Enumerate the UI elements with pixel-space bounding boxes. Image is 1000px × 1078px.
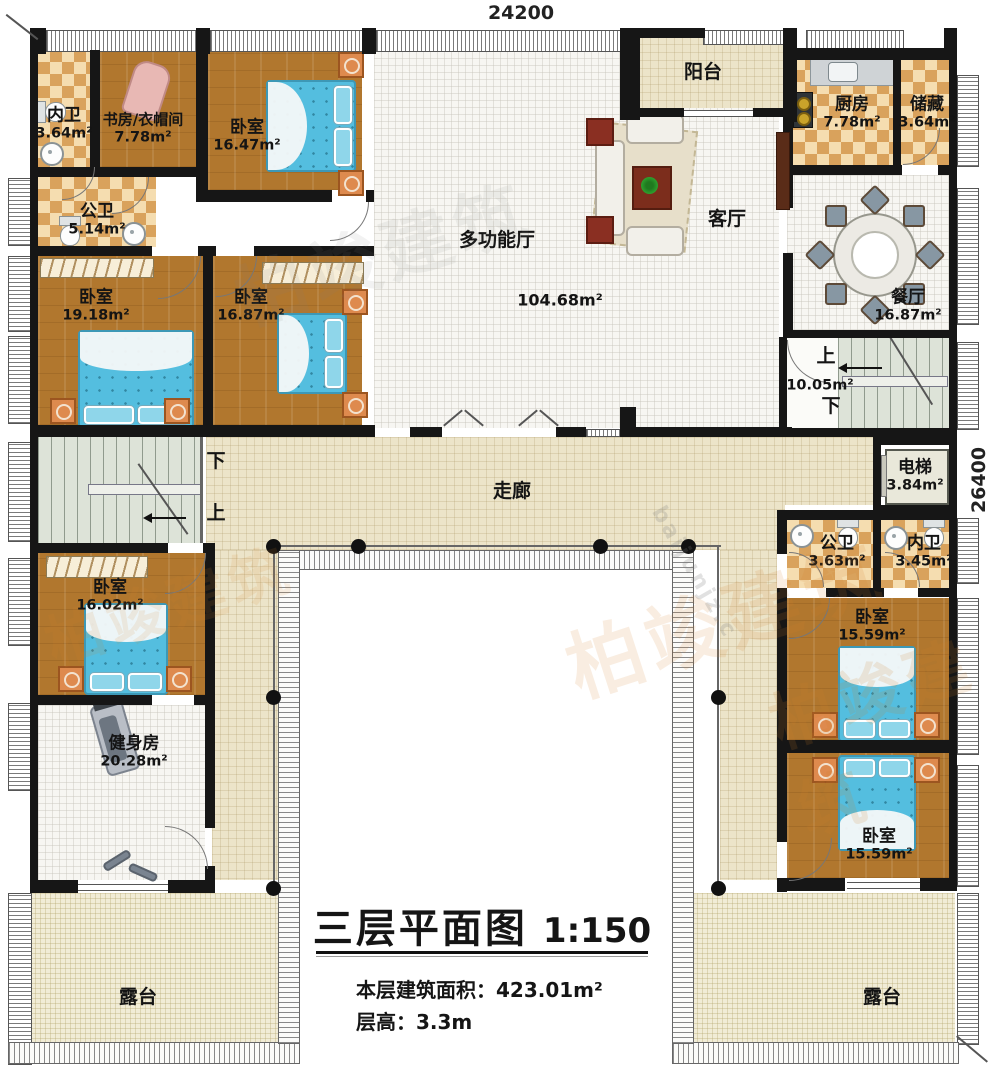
label-terrace-left: 露台 bbox=[119, 986, 157, 1008]
guard-line bbox=[717, 545, 719, 890]
column-dot bbox=[711, 881, 726, 896]
sliding-door bbox=[78, 884, 168, 891]
label-bath-public-2: 公卫3.63m² bbox=[808, 533, 865, 570]
wall bbox=[787, 330, 957, 338]
floor-area-label: 本层建筑面积： bbox=[356, 978, 496, 1002]
door-arc bbox=[330, 202, 369, 241]
label-study: 书房/衣帽间7.78m² bbox=[103, 112, 183, 147]
label-stairs-right-up: 上 bbox=[816, 345, 835, 367]
nightstand bbox=[812, 712, 838, 738]
bed bbox=[84, 603, 168, 695]
room-terrace-right bbox=[692, 893, 955, 1043]
wall bbox=[366, 190, 374, 202]
railing bbox=[278, 550, 300, 1044]
wall bbox=[203, 255, 213, 425]
wall bbox=[944, 28, 957, 60]
plant bbox=[641, 177, 658, 194]
floor-height-line: 层高：3.3m bbox=[356, 1006, 472, 1035]
dimension-right: 26400 bbox=[968, 447, 990, 513]
dining-chair bbox=[825, 205, 847, 227]
window-band bbox=[8, 336, 32, 424]
window-band bbox=[957, 342, 979, 430]
railing bbox=[672, 550, 694, 1044]
corner-tick bbox=[6, 14, 39, 40]
pillow bbox=[325, 356, 343, 389]
guard-line bbox=[200, 437, 203, 543]
label-bedroom-1918: 卧室19.18m² bbox=[62, 287, 129, 324]
bed-sheet bbox=[279, 315, 309, 392]
label-living-room: 客厅 bbox=[708, 208, 746, 230]
wall bbox=[783, 28, 797, 122]
sofa-bottom bbox=[626, 226, 684, 256]
floor-plan-canvas: 内卫3.64m² 书房/衣帽间7.78m² 卧室16.47m² 公卫5.14m²… bbox=[0, 0, 1000, 1078]
wall bbox=[556, 427, 586, 437]
stairs-right-arrow-line bbox=[846, 367, 882, 369]
nightstand bbox=[914, 712, 940, 738]
wall bbox=[918, 588, 949, 597]
window-band bbox=[957, 765, 979, 887]
railing bbox=[672, 1042, 959, 1064]
wall bbox=[920, 878, 949, 891]
column-dot bbox=[266, 539, 281, 554]
window-band bbox=[46, 30, 198, 52]
wall bbox=[873, 518, 881, 590]
guard-line bbox=[273, 545, 721, 547]
corridor-left bbox=[212, 550, 278, 880]
window-band bbox=[376, 30, 624, 52]
floor-area-value: 423.01m² bbox=[496, 978, 603, 1002]
railing bbox=[8, 1042, 300, 1064]
title-block: 三层平面图 1:150 bbox=[300, 896, 664, 954]
stove-burner-2 bbox=[797, 112, 811, 126]
kitchen-sink bbox=[828, 62, 858, 82]
pillow bbox=[334, 128, 352, 166]
floor-height-label: 层高： bbox=[356, 1010, 416, 1034]
wall bbox=[777, 588, 787, 842]
label-bath-inner-2: 内卫3.45m² bbox=[895, 533, 952, 570]
label-stairs-right-down: 下 bbox=[821, 395, 840, 417]
wall bbox=[623, 28, 705, 38]
wall bbox=[873, 437, 957, 445]
wall bbox=[620, 427, 792, 437]
nightstand bbox=[342, 392, 368, 418]
window-band bbox=[806, 30, 904, 50]
wall bbox=[640, 108, 684, 117]
label-stairs-left-down: 下 bbox=[206, 450, 225, 472]
label-gym: 健身房20.28m² bbox=[100, 733, 167, 770]
sink bbox=[40, 142, 64, 166]
wall bbox=[168, 880, 213, 893]
pillow bbox=[334, 86, 352, 124]
label-stairs-left-up: 上 bbox=[206, 502, 225, 524]
pillow bbox=[128, 673, 162, 691]
wall bbox=[194, 695, 215, 705]
column-dot bbox=[266, 881, 281, 896]
bed-sheet bbox=[840, 648, 914, 687]
nightstand bbox=[50, 398, 76, 424]
wall bbox=[30, 543, 168, 553]
window-band bbox=[957, 75, 979, 167]
stairs-right-arrow-head bbox=[838, 363, 847, 373]
window-band bbox=[210, 30, 364, 52]
window-band bbox=[8, 703, 32, 791]
column-dot bbox=[593, 539, 608, 554]
bed bbox=[838, 646, 916, 742]
label-dining: 餐厅16.87m² bbox=[874, 287, 941, 324]
wall bbox=[753, 108, 785, 117]
label-multifunction-hall: 多功能厅 bbox=[459, 229, 535, 251]
pillow bbox=[90, 673, 124, 691]
guard-line bbox=[273, 545, 275, 890]
stairs-left-arrow-head bbox=[143, 513, 152, 523]
wall bbox=[30, 695, 152, 705]
pillow bbox=[844, 720, 875, 738]
wall bbox=[938, 165, 957, 175]
wall bbox=[783, 253, 793, 337]
nightstand bbox=[338, 170, 364, 196]
sliding-door bbox=[847, 882, 920, 889]
wardrobe bbox=[40, 258, 154, 278]
column-dot bbox=[681, 539, 696, 554]
side-table-2 bbox=[586, 216, 614, 244]
plan-scale: 1:150 bbox=[543, 911, 651, 951]
bed bbox=[277, 313, 347, 394]
wall bbox=[873, 437, 881, 513]
label-bath-public-1: 公卫5.14m² bbox=[68, 201, 125, 238]
tv-cabinet bbox=[776, 132, 790, 210]
wall bbox=[30, 167, 208, 177]
wardrobe bbox=[262, 262, 364, 284]
label-bedroom-1687: 卧室16.87m² bbox=[217, 287, 284, 324]
dimension-top: 24200 bbox=[488, 2, 554, 24]
window-band bbox=[8, 442, 32, 542]
bed-sheet bbox=[80, 332, 192, 371]
wall bbox=[362, 28, 376, 54]
label-bedroom-1559b: 卧室15.59m² bbox=[845, 826, 912, 863]
nightstand bbox=[342, 289, 368, 315]
corridor-right bbox=[720, 550, 777, 880]
label-balcony: 阳台 bbox=[684, 61, 722, 83]
nightstand bbox=[164, 398, 190, 424]
wardrobe bbox=[46, 556, 148, 578]
wall bbox=[787, 510, 949, 520]
window-band bbox=[8, 256, 32, 332]
label-bedroom-1647: 卧室16.47m² bbox=[213, 117, 280, 154]
title-underline-2 bbox=[316, 956, 648, 957]
stairs-left-landing-bar bbox=[88, 484, 202, 495]
wall bbox=[30, 28, 38, 893]
floor-height-value: 3.3m bbox=[416, 1010, 472, 1034]
window-band bbox=[957, 893, 979, 1045]
corridor-elevator bbox=[785, 437, 873, 505]
pillow bbox=[879, 720, 910, 738]
column-dot bbox=[351, 539, 366, 554]
column-dot bbox=[711, 690, 726, 705]
label-elevator: 电梯3.84m² bbox=[886, 457, 943, 494]
nightstand bbox=[166, 666, 192, 692]
dining-table-inner bbox=[851, 231, 899, 279]
wall bbox=[196, 190, 332, 202]
wall bbox=[254, 246, 374, 256]
label-corridor: 走廊 bbox=[493, 480, 531, 502]
column-dot bbox=[266, 690, 281, 705]
window-band bbox=[8, 893, 32, 1065]
side-table-1 bbox=[586, 118, 614, 146]
label-multifunction-area: 104.68m² bbox=[517, 292, 602, 311]
nightstand bbox=[338, 52, 364, 78]
label-bedroom-1602: 卧室16.02m² bbox=[76, 577, 143, 614]
label-bath-inner-1: 内卫3.64m² bbox=[35, 105, 92, 142]
title-underline bbox=[316, 951, 648, 954]
wall bbox=[826, 588, 884, 597]
window-band bbox=[957, 598, 979, 755]
wall bbox=[620, 28, 640, 120]
stove-burner-1 bbox=[797, 97, 811, 111]
label-storage: 储藏3.64m² bbox=[898, 94, 955, 131]
stairs-right-landing-bar bbox=[842, 376, 948, 387]
pillow bbox=[879, 759, 910, 777]
window-band bbox=[8, 178, 32, 246]
label-bedroom-1559a: 卧室15.59m² bbox=[838, 607, 905, 644]
window-band bbox=[703, 30, 785, 45]
sliding-door bbox=[684, 110, 753, 117]
wall bbox=[205, 543, 215, 828]
nightstand bbox=[914, 757, 940, 783]
wall bbox=[777, 510, 787, 554]
nightstand bbox=[812, 757, 838, 783]
nightstand bbox=[58, 666, 84, 692]
label-stairs-right-area: 10.05m² bbox=[786, 375, 853, 394]
wall bbox=[30, 880, 78, 893]
wall bbox=[785, 165, 902, 175]
window-band bbox=[586, 429, 622, 437]
window-band bbox=[957, 188, 979, 325]
label-kitchen: 厨房7.78m² bbox=[823, 94, 880, 131]
label-terrace-right: 露台 bbox=[863, 986, 901, 1008]
wall bbox=[410, 427, 442, 437]
wall bbox=[949, 58, 957, 891]
window-band bbox=[957, 518, 979, 584]
window-band bbox=[8, 558, 32, 646]
room-terrace-left bbox=[30, 893, 278, 1043]
pillow bbox=[325, 319, 343, 352]
wall bbox=[795, 48, 957, 60]
stairs-left-arrow-line bbox=[150, 517, 186, 519]
page-title: 三层平面图 bbox=[313, 906, 528, 952]
wall bbox=[777, 878, 845, 891]
floor-area-line: 本层建筑面积：423.01m² bbox=[356, 974, 603, 1003]
pillow bbox=[84, 406, 134, 424]
pillow bbox=[844, 759, 875, 777]
wall bbox=[30, 425, 375, 437]
wall bbox=[787, 740, 949, 753]
wall bbox=[787, 428, 957, 437]
dining-chair bbox=[903, 205, 925, 227]
dining-chair bbox=[825, 283, 847, 305]
wall bbox=[30, 246, 152, 256]
